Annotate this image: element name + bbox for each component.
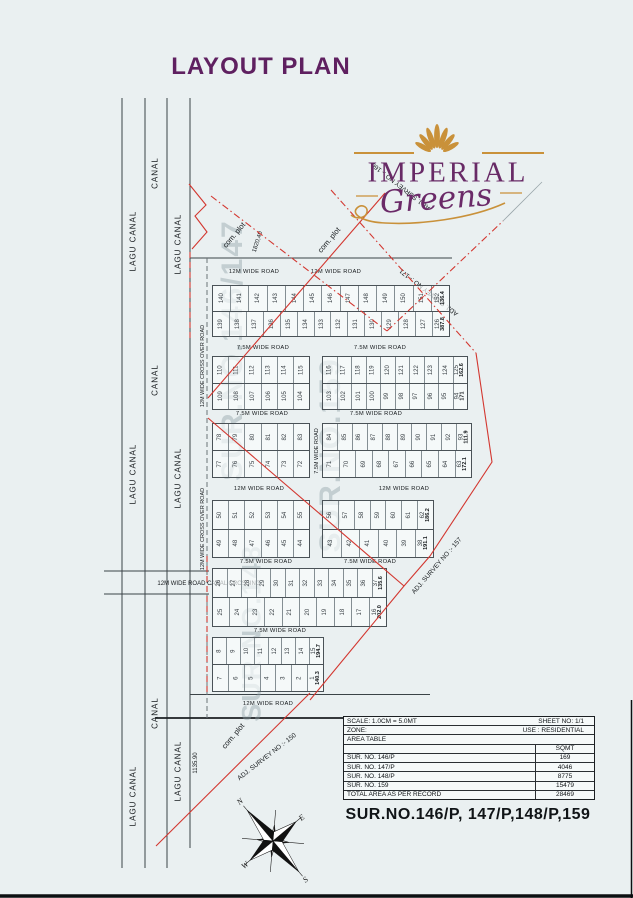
plot-cell: 21 — [282, 598, 299, 626]
plot-cell: 39 — [396, 530, 415, 558]
plot-number: 31 — [289, 580, 295, 587]
plot-number: 46 — [266, 540, 272, 547]
plot-number: 20 — [305, 609, 311, 616]
road-label: 7.5M WIDE ROAD — [254, 628, 306, 634]
plot-cell: 4 — [260, 665, 276, 691]
plot-number: 47 — [250, 540, 256, 547]
plot-number: 70 — [344, 461, 350, 468]
plot-cell: 76 — [228, 451, 244, 477]
plot-number: 148 — [364, 293, 370, 303]
plot-number: 114 — [282, 365, 288, 375]
plot-number: 86 — [357, 434, 363, 441]
plot-number: 145 — [310, 293, 316, 303]
plot-cell: 68 — [372, 451, 389, 477]
plot-number: 64 — [444, 461, 450, 468]
plot-cell: 90 — [411, 424, 426, 450]
table-cell-label: SUR. NO. 147/P — [344, 764, 535, 771]
plot-number: 78 — [217, 434, 223, 441]
plot-cell: 152136.4 — [431, 286, 449, 311]
plot-number: 150 — [401, 293, 407, 303]
plot-number: 93111.9 — [458, 430, 470, 443]
plot-number: 33 — [318, 580, 324, 587]
canal-label: LAGU CANAL — [174, 741, 183, 802]
plot-cell: 141 — [230, 286, 248, 311]
plot-cell: 33 — [314, 569, 329, 597]
plot-cell: 54 — [277, 501, 293, 529]
plot-cell: 105 — [277, 384, 293, 410]
plot-number: 137 — [252, 319, 258, 329]
plot-row: 505152535455 — [213, 501, 309, 529]
plot-number: 21 — [288, 609, 294, 616]
plot-number: 75 — [250, 461, 256, 468]
plot-number: 152136.4 — [434, 291, 446, 305]
plot-cell: 102 — [337, 384, 352, 410]
plot-cell: 55 — [293, 501, 309, 529]
plot-number: 52 — [250, 511, 256, 518]
plot-cell: 111 — [228, 357, 244, 383]
table-row: AREA TABLE — [344, 734, 594, 743]
plot-number: 117 — [341, 365, 347, 375]
plot-number: 61 — [407, 511, 413, 518]
plot-cell: 134 — [297, 312, 314, 337]
plot-cell: 70 — [339, 451, 356, 477]
plot-number: 133 — [319, 319, 325, 329]
plot-cell: 1140.3 — [307, 665, 323, 691]
plot-cell: 97 — [409, 384, 424, 410]
road-label: 12M WIDE ROAD — [234, 486, 284, 492]
survey-numbers-caption: SUR.NO.146/P, 147/P,148/P,159 — [346, 806, 591, 824]
plot-cell: 69 — [355, 451, 372, 477]
plot-number: 106 — [266, 391, 272, 401]
plot-number: 51 — [234, 511, 240, 518]
plot-row: 1401411421431441451461471481491501511521… — [213, 286, 449, 311]
plot-number: 63172.1 — [457, 457, 469, 471]
canal-label: LAGU CANAL — [129, 211, 138, 272]
plot-row: 56575859606162186.2 — [323, 501, 433, 529]
plot-number: 77 — [217, 461, 223, 468]
table-cell-label: TOTAL AREA AS PER RECORD — [344, 791, 535, 798]
plot-number: 130 — [370, 319, 376, 329]
road-label: 7.5M WIDE ROAD — [240, 559, 292, 565]
plot-number: 101 — [356, 391, 362, 401]
plot-block: 505152535455494847464544 — [212, 500, 310, 558]
plot-cell: 58 — [354, 501, 370, 529]
plot-number: 67 — [394, 461, 400, 468]
plot-number: 68 — [377, 461, 383, 468]
table-cell-label: SCALE: 1.0CM = 5.0MT — [344, 718, 538, 725]
plot-cell: 132 — [330, 312, 347, 337]
plot-cell: 89 — [397, 424, 412, 450]
plot-cell: 145 — [303, 286, 321, 311]
plot-cell: 71 — [323, 451, 339, 477]
plot-number: 147 — [346, 293, 352, 303]
plot-number: 79 — [234, 434, 240, 441]
plot-number: 35 — [347, 580, 353, 587]
plot-cell: 125162.6 — [453, 357, 468, 383]
logo-rule-left — [354, 152, 414, 154]
plot-cell: 41 — [359, 530, 378, 558]
plot-cell: 129 — [381, 312, 398, 337]
plot-number: 118 — [356, 365, 362, 375]
plot-number: 139 — [218, 319, 224, 329]
plot-number: 84 — [327, 434, 333, 441]
road-label: 7.5M WIDE ROAD — [350, 411, 402, 417]
plot-cell: 135 — [280, 312, 297, 337]
page-title: LAYOUT PLAN — [171, 53, 350, 81]
plot-cell: 63172.1 — [455, 451, 472, 477]
plot-cell: 86 — [352, 424, 367, 450]
plot-row: 7654321140.3 — [213, 664, 323, 691]
plot-cell: 20 — [299, 598, 316, 626]
plot-cell: 123 — [424, 357, 439, 383]
plot-cell: 93111.9 — [456, 424, 471, 450]
plan-annotation: 12M WIDE CROSS OVER ROAD — [200, 488, 206, 570]
plot-number: 39 — [403, 540, 409, 547]
table-cell-value: 8775 — [535, 772, 594, 780]
plot-cell: 80 — [244, 424, 260, 450]
plot-cell: 128 — [398, 312, 415, 337]
plot-number: 49 — [217, 540, 223, 547]
plot-cell: 148 — [358, 286, 376, 311]
table-row: TOTAL AREA AS PER RECORD28469 — [344, 790, 594, 799]
plot-row: 116117118119120121122123124125162.6 — [323, 357, 467, 383]
plot-row: 110111112113114115 — [213, 357, 309, 383]
plot-cell: 67 — [388, 451, 405, 477]
plot-cell: 137 — [246, 312, 263, 337]
plot-number: 98 — [399, 393, 405, 400]
plot-number: 113 — [266, 365, 272, 375]
plot-cell: 78 — [213, 424, 228, 450]
plot-cell: 118 — [351, 357, 366, 383]
plot-cell: 46 — [261, 530, 277, 558]
plot-row: 1391381371361351341331321311301291281271… — [213, 311, 449, 337]
plot-number: 82 — [282, 434, 288, 441]
plot-cell: 149 — [376, 286, 394, 311]
canal-label: CANAL — [151, 157, 160, 189]
canal-label: LAGU CANAL — [129, 766, 138, 827]
plot-cell: 29 — [256, 569, 271, 597]
table-cell-value: SQMT — [535, 745, 594, 753]
plot-cell: 142 — [248, 286, 266, 311]
plot-number: 126387.8 — [435, 317, 447, 331]
plot-cell: 64 — [438, 451, 455, 477]
plot-number: 140 — [218, 293, 224, 303]
plot-cell: 79 — [228, 424, 244, 450]
plot-number: 116 — [327, 365, 333, 375]
table-cell-label: SUR. NO. 159 — [344, 782, 535, 789]
plot-number: 146 — [328, 293, 334, 303]
plot-number: 3 — [281, 676, 287, 679]
canal-label: LAGU CANAL — [174, 448, 183, 509]
plot-number: 10 — [244, 648, 250, 655]
plot-cell: 95 — [438, 384, 453, 410]
plot-number: 72 — [298, 461, 304, 468]
plot-number: 66 — [410, 461, 416, 468]
plot-number: 132 — [336, 319, 342, 329]
plot-cell: 84 — [323, 424, 337, 450]
plot-cell: 127 — [415, 312, 432, 337]
plot-number: 1140.3 — [310, 671, 322, 685]
plot-number: 57 — [343, 511, 349, 518]
plot-cell: 60 — [385, 501, 401, 529]
plot-number: 13 — [286, 648, 292, 655]
plot-cell: 26 — [213, 569, 227, 597]
plot-number: 58 — [359, 511, 365, 518]
plot-cell: 38191.1 — [415, 530, 434, 558]
table-cell-label: AREA TABLE — [344, 736, 594, 743]
plot-number: 91 — [431, 434, 437, 441]
plot-number: 5 — [249, 676, 255, 679]
plot-block: 1401411421431441451461471481491501511521… — [212, 285, 450, 337]
plan-annotation: 1135.90 — [193, 752, 199, 773]
plot-number: 89 — [401, 434, 407, 441]
area-table: SCALE: 1.0CM = 5.0MTSHEET NO: 1/1ZONE:US… — [343, 716, 595, 800]
plot-cell: 110 — [213, 357, 228, 383]
plot-number: 62186.2 — [420, 508, 432, 522]
plot-cell: 94171 — [453, 384, 468, 410]
plot-number: 43 — [329, 540, 335, 547]
plot-cell: 56 — [323, 501, 338, 529]
plot-row: 434241403938191.1 — [323, 529, 433, 558]
plot-cell: 112 — [244, 357, 260, 383]
plot-number: 25 — [218, 609, 224, 616]
plot-cell: 42 — [341, 530, 360, 558]
plot-number: 41 — [366, 540, 372, 547]
compass-east-label: E — [296, 813, 306, 824]
plot-row: 787980818283 — [213, 424, 309, 450]
plot-cell: 100 — [366, 384, 381, 410]
plot-number: 104 — [298, 391, 304, 401]
plot-cell: 124 — [438, 357, 453, 383]
plot-number: 92 — [446, 434, 452, 441]
plot-cell: 36 — [357, 569, 372, 597]
plot-number: 90 — [416, 434, 422, 441]
plan-annotation: 7.5M WIDE ROAD — [314, 428, 320, 474]
logo-script: Greens — [379, 177, 493, 221]
plot-cell: 91 — [426, 424, 441, 450]
plot-number: 80 — [250, 434, 256, 441]
plot-cell: 146 — [321, 286, 339, 311]
plot-number: 48 — [234, 540, 240, 547]
table-cell-value: SHEET NO: 1/1 — [538, 717, 594, 725]
plot-number: 17 — [357, 609, 363, 616]
plot-cell: 13 — [281, 638, 295, 664]
plot-number: 111 — [234, 365, 240, 374]
plot-cell: 5 — [244, 665, 260, 691]
plot-cell: 25 — [213, 598, 229, 626]
plot-number: 142 — [255, 293, 261, 303]
plot-cell: 6 — [228, 665, 244, 691]
plot-cell: 18 — [334, 598, 351, 626]
plot-cell: 62186.2 — [417, 501, 433, 529]
plot-number: 149 — [383, 293, 389, 303]
road-label: 7.5M WIDE ROAD — [236, 411, 288, 417]
plot-cell: 28 — [241, 569, 256, 597]
plot-cell: 9 — [226, 638, 240, 664]
plot-number: 2 — [297, 676, 303, 679]
plot-number: 60 — [391, 511, 397, 518]
plot-number: 76 — [234, 461, 240, 468]
plot-cell: 88 — [382, 424, 397, 450]
plot-number: 119 — [370, 365, 376, 375]
road-label: 7.5M WIDE ROAD — [344, 559, 396, 565]
plot-number: 38191.1 — [418, 536, 430, 550]
plot-number: 87 — [372, 434, 378, 441]
plot-number: 16202.0 — [372, 605, 384, 619]
plot-number: 26 — [217, 580, 223, 587]
table-cell-label: SUR. NO. 146/P — [344, 754, 535, 761]
plot-number: 134 — [302, 319, 308, 329]
plan-annotation: com. plot — [316, 225, 342, 254]
plot-cell: 138 — [229, 312, 246, 337]
plot-number: 11 — [258, 648, 264, 654]
plot-cell: 104 — [293, 384, 309, 410]
plot-number: 131 — [353, 319, 359, 329]
plot-cell: 65 — [421, 451, 438, 477]
plot-number: 96 — [428, 393, 434, 400]
plot-number: 29 — [260, 580, 266, 587]
plot-number: 138 — [235, 319, 241, 329]
plan-annotation: 12M WIDE CROSS OVER ROAD — [200, 325, 206, 407]
plot-cell: 34 — [328, 569, 343, 597]
plot-cell: 72 — [293, 451, 309, 477]
plot-number: 44 — [298, 540, 304, 547]
plot-cell: 109 — [213, 384, 228, 410]
plot-number: 65 — [427, 461, 433, 468]
plot-number: 50 — [217, 511, 223, 518]
plot-row: 109108107106105104 — [213, 383, 309, 410]
plot-block: 116117118119120121122123124125162.610310… — [322, 356, 468, 410]
plot-cell: 119 — [366, 357, 381, 383]
table-cell-label: ZONE: — [344, 727, 523, 734]
plot-cell: 44 — [293, 530, 309, 558]
plot-cell: 37135.6 — [372, 569, 387, 597]
road-label: 12M WIDE ROAD — [229, 269, 279, 275]
plot-cell: 133 — [314, 312, 331, 337]
table-row: ZONE:USE : RESIDENTIAL — [344, 725, 594, 734]
plot-number: 122 — [414, 365, 420, 375]
plot-cell: 99 — [380, 384, 395, 410]
table-row: SUR. NO. 146/P169 — [344, 753, 594, 762]
plot-cell: 74 — [261, 451, 277, 477]
plot-cell: 103 — [323, 384, 337, 410]
plot-number: 36 — [362, 580, 368, 587]
road-label: 7.5M WIDE ROAD — [354, 345, 406, 351]
plot-number: 69 — [361, 461, 367, 468]
compass-south-label: S — [301, 875, 310, 884]
plot-cell: 113 — [261, 357, 277, 383]
plot-cell: 126387.8 — [432, 312, 449, 337]
plot-cell: 107 — [244, 384, 260, 410]
table-row: SUR. NO. 147/P4046 — [344, 762, 594, 771]
table-row: SCALE: 1.0CM = 5.0MTSHEET NO: 1/1 — [344, 717, 594, 725]
plot-cell: 7 — [213, 665, 228, 691]
compass-west-label: W — [240, 859, 252, 871]
plot-number: 125162.6 — [454, 363, 466, 377]
plot-number: 123 — [428, 365, 434, 375]
plot-cell: 32 — [299, 569, 314, 597]
plot-number: 144 — [291, 293, 297, 303]
plot-number: 100 — [370, 391, 376, 401]
plot-number: 45 — [282, 540, 288, 547]
plot-cell: 136 — [263, 312, 280, 337]
plot-cell: 59 — [370, 501, 386, 529]
plot-number: 88 — [386, 434, 392, 441]
plot-number: 14 — [300, 648, 306, 655]
plot-row: 89101112131415194.7 — [213, 638, 323, 664]
plot-number: 74 — [266, 461, 272, 468]
plot-cell: 75 — [244, 451, 260, 477]
table-row: SUR. NO. 15915479 — [344, 781, 594, 790]
compass-rose-icon: N E S W — [203, 771, 343, 898]
plot-cell: 47 — [244, 530, 260, 558]
plot-cell: 77 — [213, 451, 228, 477]
plot-cell: 12 — [268, 638, 282, 664]
plot-number: 71 — [328, 461, 334, 468]
plot-cell: 23 — [247, 598, 264, 626]
plot-number: 120 — [385, 365, 391, 375]
plot-number: 103 — [327, 391, 333, 401]
plot-number: 102 — [341, 391, 347, 401]
plot-block: 84858687888990919293111.9717069686766656… — [322, 423, 472, 478]
plot-number: 30 — [275, 580, 281, 587]
plot-number: 19 — [322, 609, 328, 616]
plot-number: 105 — [282, 391, 288, 401]
plot-cell: 35 — [343, 569, 358, 597]
plot-number: 97 — [414, 393, 420, 400]
plot-number: 9 — [230, 649, 236, 652]
table-cell-label: SUR. NO. 148/P — [344, 773, 535, 780]
plot-row: 777675747372 — [213, 450, 309, 477]
plot-number: 107 — [250, 391, 256, 401]
plot-number: 73 — [282, 461, 288, 468]
plot-number: 83 — [298, 434, 304, 441]
table-cell-value: 15479 — [535, 782, 594, 790]
plot-block: 787980818283777675747372 — [212, 423, 310, 478]
plot-cell: 81 — [261, 424, 277, 450]
compass-north-label: N — [234, 796, 245, 807]
canal-label: CANAL — [151, 697, 160, 729]
plot-number: 18 — [340, 609, 346, 616]
plot-cell: 121 — [395, 357, 410, 383]
plot-cell: 144 — [285, 286, 303, 311]
plot-number: 4 — [265, 676, 271, 679]
plot-block: 110111112113114115109108107106105104 — [212, 356, 310, 410]
plot-number: 121 — [399, 365, 405, 375]
plot-number: 22 — [270, 609, 276, 616]
plot-number: 81 — [266, 434, 272, 441]
plot-cell: 150 — [394, 286, 412, 311]
plot-cell: 14 — [295, 638, 309, 664]
plot-number: 127 — [421, 319, 427, 329]
plot-number: 42 — [347, 540, 353, 547]
road-label: 7.5M WIDE ROAD — [237, 345, 289, 351]
plot-cell: 83 — [293, 424, 309, 450]
plot-cell: 43 — [323, 530, 341, 558]
plot-cell: 140 — [213, 286, 230, 311]
table-cell-value: 4046 — [535, 763, 594, 771]
canal-label: CANAL — [151, 364, 160, 396]
plot-block: 262728293031323334353637135.625242322212… — [212, 568, 387, 627]
plot-block: 89101112131415194.77654321140.3 — [212, 637, 324, 692]
plot-block: 56575859606162186.2434241403938191.1 — [322, 500, 434, 558]
plot-cell: 130 — [364, 312, 381, 337]
plot-number: 34 — [333, 580, 339, 587]
plot-number: 108 — [234, 391, 240, 401]
table-cell-value: 28469 — [535, 791, 594, 799]
plot-cell: 92 — [441, 424, 456, 450]
plot-number: 112 — [250, 365, 256, 375]
